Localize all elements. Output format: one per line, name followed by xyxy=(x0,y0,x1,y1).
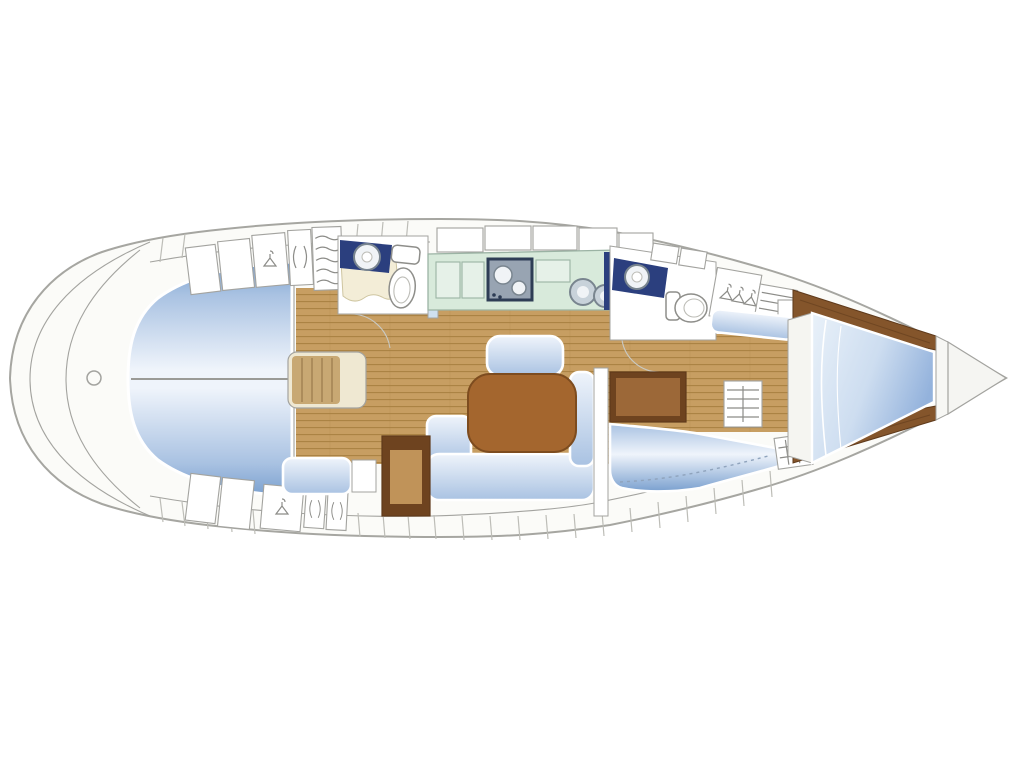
cabin-cabinet xyxy=(610,372,686,422)
counter-locker xyxy=(462,262,484,298)
side-bench xyxy=(283,458,351,494)
burner xyxy=(494,266,512,284)
toilet xyxy=(666,292,707,322)
aft-head xyxy=(338,236,438,318)
center-bench xyxy=(487,336,563,376)
v-berth-headboard xyxy=(788,313,812,463)
nav-station xyxy=(382,436,430,516)
hanging-locker xyxy=(252,233,289,288)
boat-floorplan-image: Sailing yacht interior layout plan (top … xyxy=(0,0,1024,768)
stove-knob xyxy=(498,295,502,299)
step-treads xyxy=(292,356,340,404)
counter-locker xyxy=(436,262,460,298)
rudder-post xyxy=(87,371,101,385)
burner xyxy=(512,281,526,295)
bow-bulkhead xyxy=(936,336,948,420)
side-locker xyxy=(352,460,376,492)
stove-knob xyxy=(492,293,496,297)
companionway-steps xyxy=(288,352,366,408)
saloon-table xyxy=(468,374,576,452)
settee-bottom xyxy=(427,454,594,500)
bow-cabin xyxy=(788,290,1006,463)
forward-head xyxy=(610,243,716,340)
basin-drain xyxy=(632,272,642,282)
counter-locker xyxy=(536,260,570,282)
anchor-locker xyxy=(948,342,1006,414)
cabin-bulkhead xyxy=(594,368,608,516)
basin-drain xyxy=(362,252,372,262)
forward-dresser xyxy=(724,381,762,427)
floorplan-svg: Sailing yacht interior layout plan (top … xyxy=(0,0,1024,768)
stove xyxy=(488,259,532,300)
